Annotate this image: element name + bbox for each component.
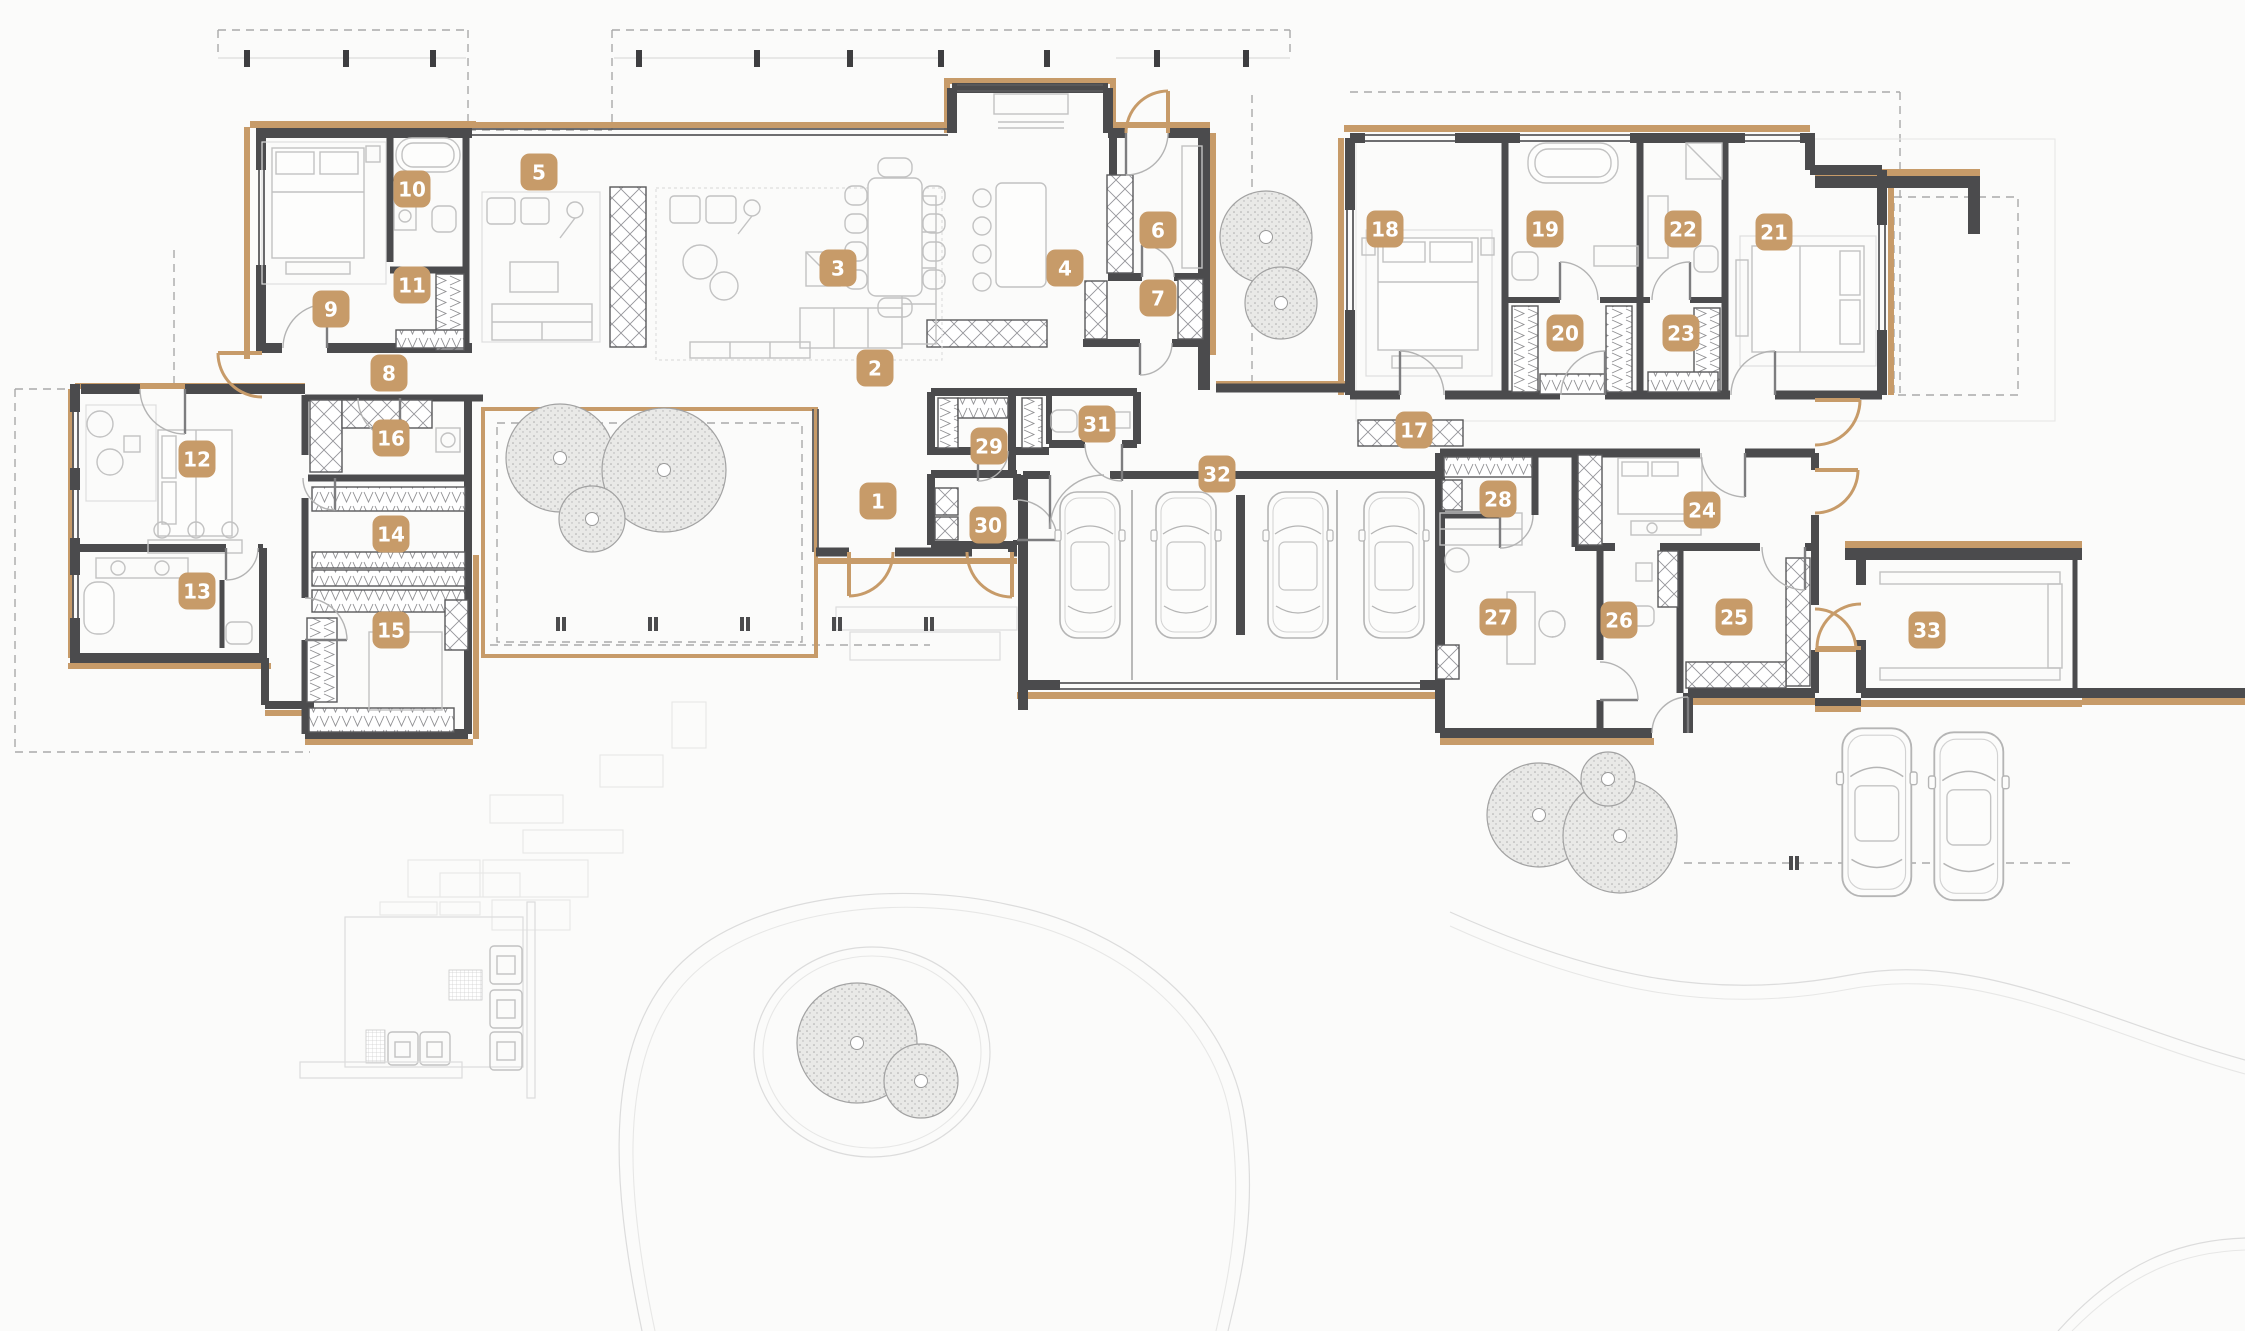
car-icon [1359, 492, 1429, 638]
room-label-28: 28 [1480, 481, 1517, 518]
car-icon [1151, 492, 1221, 638]
tree-icon [559, 486, 625, 552]
room-label-7: 7 [1140, 280, 1177, 317]
room-label-9: 9 [313, 291, 350, 328]
room-label-14: 14 [373, 516, 410, 553]
room-label-3: 3 [820, 250, 857, 287]
tree-icon [884, 1044, 958, 1118]
room-label-33: 33 [1909, 612, 1946, 649]
room-label-31: 31 [1079, 406, 1116, 443]
room-label-2: 2 [857, 350, 894, 387]
car-icon [1837, 728, 1918, 896]
floorplan-page: 1234567891011121314151617181920212223242… [0, 0, 2245, 1331]
room-label-15: 15 [373, 612, 410, 649]
room-label-1: 1 [860, 483, 897, 520]
tree-icon [1581, 752, 1635, 806]
room-label-16: 16 [373, 420, 410, 457]
room-label-26: 26 [1601, 602, 1638, 639]
room-label-17: 17 [1396, 412, 1433, 449]
car-icon [1929, 732, 2010, 900]
room-label-25: 25 [1716, 599, 1753, 636]
tree-icon [1245, 267, 1317, 339]
car-icon [1055, 492, 1125, 638]
outdoor-deck [300, 902, 535, 1098]
room-label-23: 23 [1663, 315, 1700, 352]
room-label-19: 19 [1527, 211, 1564, 248]
room-label-4: 4 [1047, 250, 1084, 287]
room-label-13: 13 [179, 573, 216, 610]
floorplan-canvas [0, 0, 2245, 1331]
room-label-27: 27 [1480, 599, 1517, 636]
room-label-8: 8 [371, 355, 408, 392]
room-label-12: 12 [179, 441, 216, 478]
room-label-5: 5 [521, 154, 558, 191]
room-label-30: 30 [970, 507, 1007, 544]
tree-icon [1220, 191, 1312, 283]
room-label-20: 20 [1547, 315, 1584, 352]
room-label-6: 6 [1140, 212, 1177, 249]
room-label-10: 10 [394, 171, 431, 208]
room-label-29: 29 [971, 428, 1008, 465]
room-label-11: 11 [394, 267, 431, 304]
garden-paths [300, 607, 2245, 1331]
room-label-21: 21 [1756, 214, 1793, 251]
car-icon [1263, 492, 1333, 638]
room-label-32: 32 [1199, 456, 1236, 493]
room-label-22: 22 [1665, 211, 1702, 248]
room-label-24: 24 [1684, 492, 1721, 529]
room-label-18: 18 [1367, 211, 1404, 248]
